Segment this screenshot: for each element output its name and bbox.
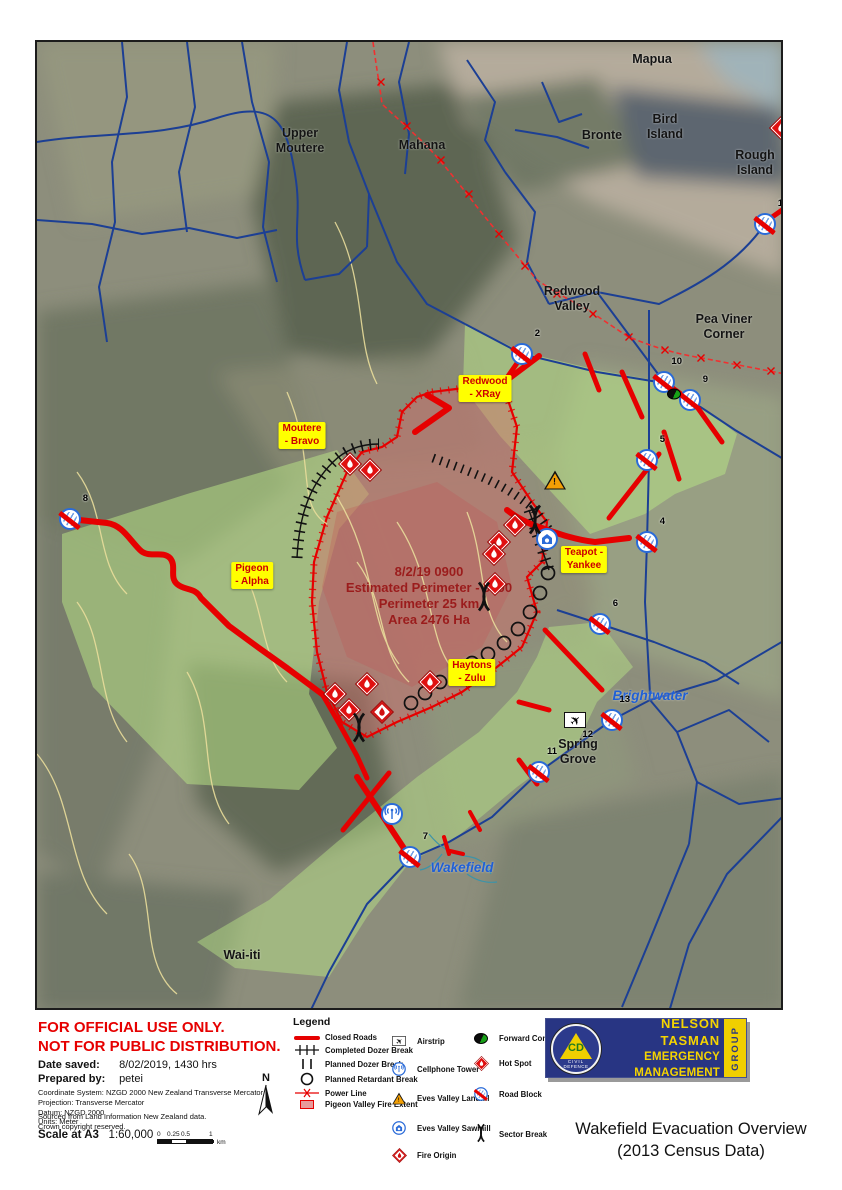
sector-break-icon — [467, 1117, 495, 1152]
map-title-line-2: (2013 Census Data) — [545, 1140, 837, 1162]
sector-break-icon — [350, 713, 368, 748]
classification-text: FOR OFFICIAL USE ONLY. NOT FOR PUBLIC DI… — [38, 1018, 281, 1056]
agency-logo: CD CIVIL DEFENCE NELSON TASMAN EMERGENCY… — [545, 1018, 747, 1078]
fire-extent-icon — [293, 1100, 321, 1109]
zone-label-pigeon-alpha: Pigeon- Alpha — [231, 562, 273, 589]
legend: Legend Closed RoadsCompleted Dozer Break… — [293, 1016, 545, 1166]
civil-defence-emblem: CD CIVIL DEFENCE — [551, 1024, 601, 1074]
legend-item-label: Road Block — [499, 1090, 542, 1099]
place-label-spring-grove: SpringGrove — [558, 737, 598, 767]
landfill-warning-icon: ! — [544, 471, 566, 490]
agency-name-line-2: EMERGENCY MANAGEMENT — [604, 1050, 720, 1081]
scale-value: 1:60,000 — [109, 1129, 154, 1141]
fire-origin-icon — [385, 1148, 413, 1163]
hot-spot-icon — [423, 675, 438, 690]
scale-bar-label: 1 — [209, 1131, 213, 1138]
hot-spot-icon — [487, 547, 502, 562]
road-block-icon-1: 1 — [754, 213, 776, 235]
legend-item-label: Power Line — [325, 1089, 367, 1098]
road-block-icon-8: 8 — [59, 508, 81, 530]
place-label-upper-moutere: UpperMoutere — [276, 126, 325, 156]
power-line-icon — [293, 1088, 321, 1098]
scale-bar-label: 0.5 — [181, 1131, 190, 1138]
group-text: GROUP — [730, 1026, 741, 1071]
north-arrow-glyph — [256, 1084, 276, 1116]
sector-break-icon — [526, 505, 544, 540]
hot-spot-icon — [343, 457, 358, 472]
legend-item-label: Airstrip — [417, 1037, 445, 1046]
place-label-mahana: Mahana — [399, 138, 446, 153]
classification-line-1: FOR OFFICIAL USE ONLY. — [38, 1018, 281, 1037]
agency-name: NELSON TASMAN EMERGENCY MANAGEMENT — [604, 1015, 720, 1081]
forward-control-point-icon — [467, 1033, 495, 1044]
legend-item-road-block: Road Block — [467, 1083, 581, 1105]
hot-spot-icon — [508, 518, 523, 533]
road-block-icon-7: 7 — [399, 846, 421, 868]
legend-item-label: Hot Spot — [499, 1059, 531, 1068]
planned-retardant-break-icon — [293, 1072, 321, 1086]
prepared-by-value: petei — [119, 1073, 143, 1085]
place-label-bird-island: BirdIsland — [647, 112, 683, 142]
road-block-icon-9: 9 — [679, 389, 701, 411]
zone-label-redwood-xray: Redwood- XRay — [459, 375, 512, 402]
page: MapuaBirdIslandBronteRoughIslandUpperMou… — [0, 0, 842, 1190]
fire-origin-icon — [375, 705, 390, 720]
cd-triangle: CD — [560, 1033, 592, 1059]
hot-spot-icon — [360, 677, 375, 692]
defence-text: DEFENCE — [563, 1064, 588, 1069]
road-block-icon-6: 6 — [589, 613, 611, 635]
cellphone-tower-icon — [381, 803, 403, 825]
hot-spot-icon — [774, 121, 784, 136]
prepared-by-label: Prepared by: — [38, 1073, 116, 1085]
road-block-icon-4: 4 — [636, 531, 658, 553]
closed-roads-icon — [293, 1036, 321, 1040]
zone-label-moutere-bravo: Moutere- Bravo — [279, 422, 326, 449]
airstrip-icon: ✈12 — [564, 712, 586, 728]
zone-label-haytons-zulu: Haytons- Zulu — [448, 659, 495, 686]
legend-item-label: Closed Roads — [325, 1033, 377, 1042]
road-block-icon — [467, 1083, 495, 1105]
scale-text: Scale at A3 1:60,000 — [38, 1129, 153, 1141]
place-label-wakefield: Wakefield — [431, 860, 494, 876]
scale-bar-label: 0 — [157, 1131, 161, 1138]
cd-initials: CD — [568, 1042, 584, 1054]
hot-spot-icon — [328, 687, 343, 702]
date-saved-row: Date saved: 8/02/2019, 1430 hrs — [38, 1059, 217, 1071]
map-title-line-1: Wakefield Evacuation Overview — [545, 1118, 837, 1140]
sector-break-icon — [475, 582, 493, 617]
legend-title: Legend — [293, 1016, 545, 1028]
legend-item-label: Fire Origin — [417, 1151, 456, 1160]
prepared-by-row: Prepared by: petei — [38, 1073, 143, 1085]
place-label-bronte: Bronte — [582, 128, 622, 143]
zone-label-teapot-yankee: Teapot -Yankee — [561, 546, 607, 573]
place-label-wai-iti: Wai-iti — [223, 948, 260, 963]
legend-item-label: Sector Break — [499, 1130, 547, 1139]
hot-spot-icon — [363, 463, 378, 478]
place-label-rough-island: RoughIsland — [735, 148, 775, 178]
road-block-icon-11: 11 — [528, 761, 550, 783]
north-arrow: N — [254, 1072, 278, 1121]
sawmill-icon — [385, 1117, 413, 1139]
completed-dozer-break-icon — [293, 1044, 321, 1056]
road-block-icon-5: 5 — [636, 449, 658, 471]
north-label: N — [254, 1072, 278, 1084]
cellphone-tower-icon — [385, 1058, 413, 1080]
agency-name-line-1: NELSON TASMAN — [604, 1015, 720, 1050]
date-saved-label: Date saved: — [38, 1059, 116, 1071]
scale-bar: 00.250.51 km — [157, 1131, 227, 1144]
scale-label: Scale at A3 — [38, 1129, 99, 1141]
map-title: Wakefield Evacuation Overview (2013 Cens… — [545, 1118, 837, 1163]
landfill-icon: ! — [385, 1089, 413, 1108]
classification-line-2: NOT FOR PUBLIC DISTRIBUTION. — [38, 1037, 281, 1056]
group-strip: GROUP — [724, 1019, 746, 1077]
road-block-icon-2: 2 — [511, 343, 533, 365]
forward-control-point-icon — [667, 389, 681, 400]
scale-bar-label: 0.25 — [167, 1131, 180, 1138]
map-canvas: MapuaBirdIslandBronteRoughIslandUpperMou… — [35, 40, 783, 1010]
road-block-icon-13: 13 — [601, 709, 623, 731]
date-saved-value: 8/02/2019, 1430 hrs — [119, 1059, 217, 1071]
planned-dozer-break-icon — [293, 1058, 321, 1070]
airstrip-icon: ✈ — [385, 1033, 413, 1049]
place-label-pea-viner-corner: Pea VinerCorner — [696, 312, 753, 342]
place-label-redwood-valley: RedwoodValley — [544, 284, 600, 314]
hot-spot-icon — [467, 1056, 495, 1071]
scale-bar-unit: km — [217, 1139, 226, 1146]
place-label-mapua: Mapua — [632, 52, 672, 67]
